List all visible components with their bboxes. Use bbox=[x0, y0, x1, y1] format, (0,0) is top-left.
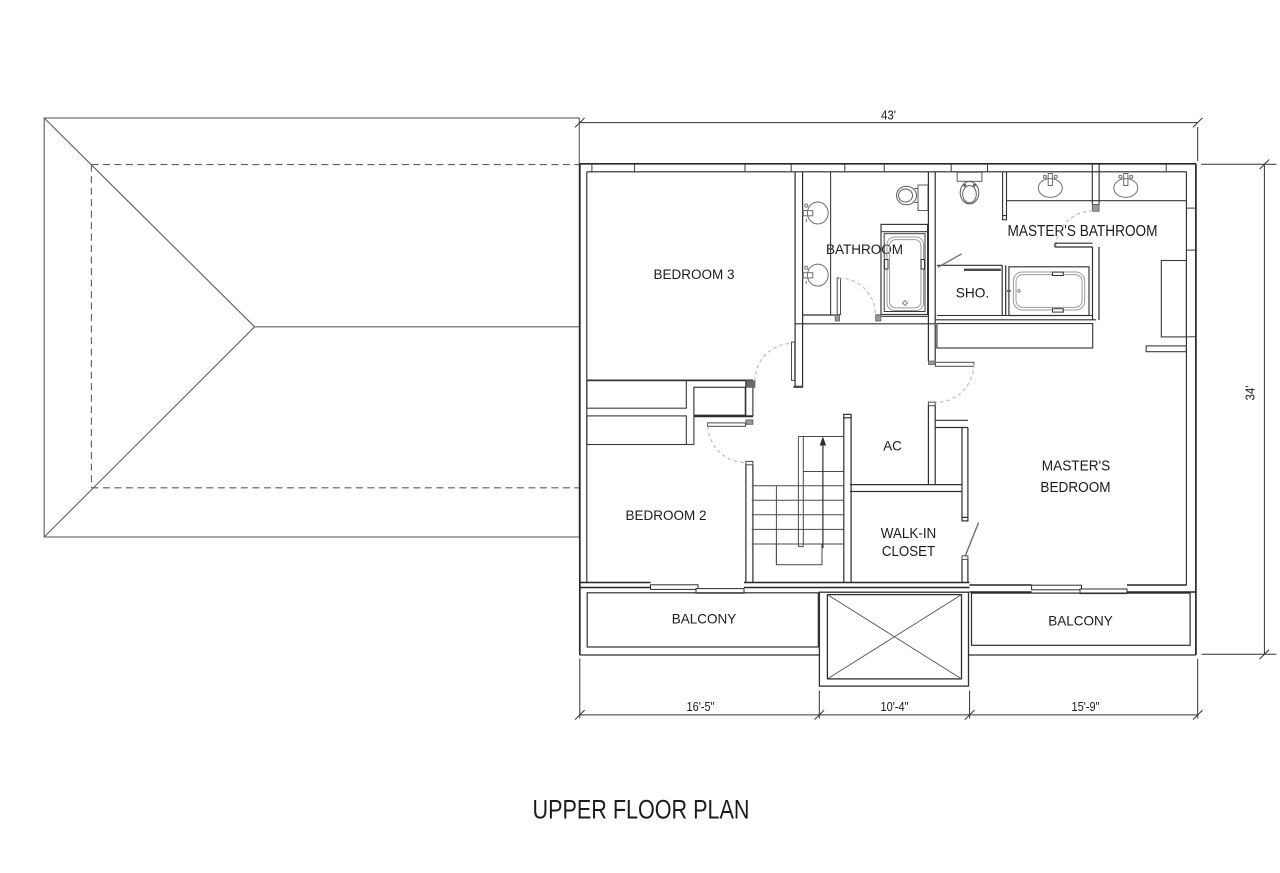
svg-text:UPPER FLOOR PLAN: UPPER FLOOR PLAN bbox=[533, 795, 750, 825]
svg-text:BALCONY: BALCONY bbox=[672, 611, 737, 627]
svg-text:BEDROOM 2: BEDROOM 2 bbox=[626, 507, 707, 523]
svg-text:AC: AC bbox=[883, 438, 902, 454]
svg-text:15'-9": 15'-9" bbox=[1072, 700, 1100, 714]
svg-text:BATHROOM: BATHROOM bbox=[826, 242, 903, 257]
svg-text:43': 43' bbox=[881, 109, 896, 123]
svg-text:BALCONY: BALCONY bbox=[1048, 612, 1113, 628]
svg-text:BEDROOM: BEDROOM bbox=[1040, 480, 1110, 496]
svg-text:34': 34' bbox=[1244, 386, 1258, 401]
svg-text:16'-5": 16'-5" bbox=[687, 700, 715, 714]
svg-text:CLOSET: CLOSET bbox=[882, 544, 935, 560]
svg-text:SHO.: SHO. bbox=[956, 285, 990, 301]
svg-text:MASTER'S: MASTER'S bbox=[1042, 458, 1111, 474]
svg-text:MASTER'S BATHROOM: MASTER'S BATHROOM bbox=[1008, 223, 1158, 240]
svg-text:BEDROOM 3: BEDROOM 3 bbox=[654, 267, 735, 282]
svg-text:10'-4": 10'-4" bbox=[881, 700, 909, 714]
svg-text:WALK-IN: WALK-IN bbox=[881, 526, 937, 542]
